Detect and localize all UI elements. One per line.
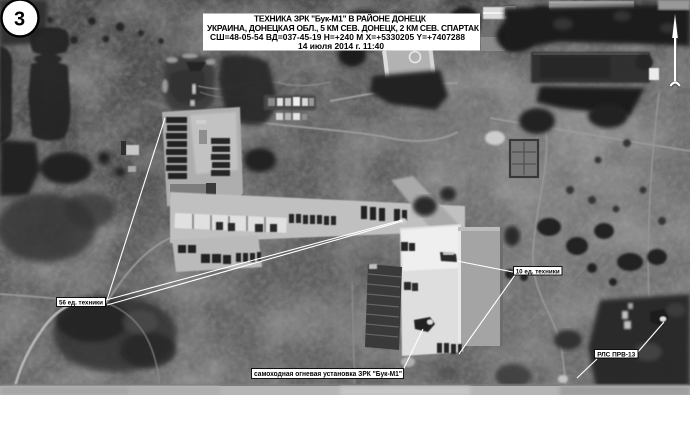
svg-text:3: 3 <box>14 9 25 31</box>
svg-text:самоходная огневая установка З: самоходная огневая установка ЗРК "Бук-М1… <box>254 371 402 378</box>
svg-text:56 ед. техники: 56 ед. техники <box>59 300 103 307</box>
svg-text:14 июля 2014 г. 11:40: 14 июля 2014 г. 11:40 <box>298 41 384 51</box>
svg-text:РЛС ПРВ-13: РЛС ПРВ-13 <box>597 351 635 358</box>
svg-text:10 ед. техники: 10 ед. техники <box>516 268 560 275</box>
